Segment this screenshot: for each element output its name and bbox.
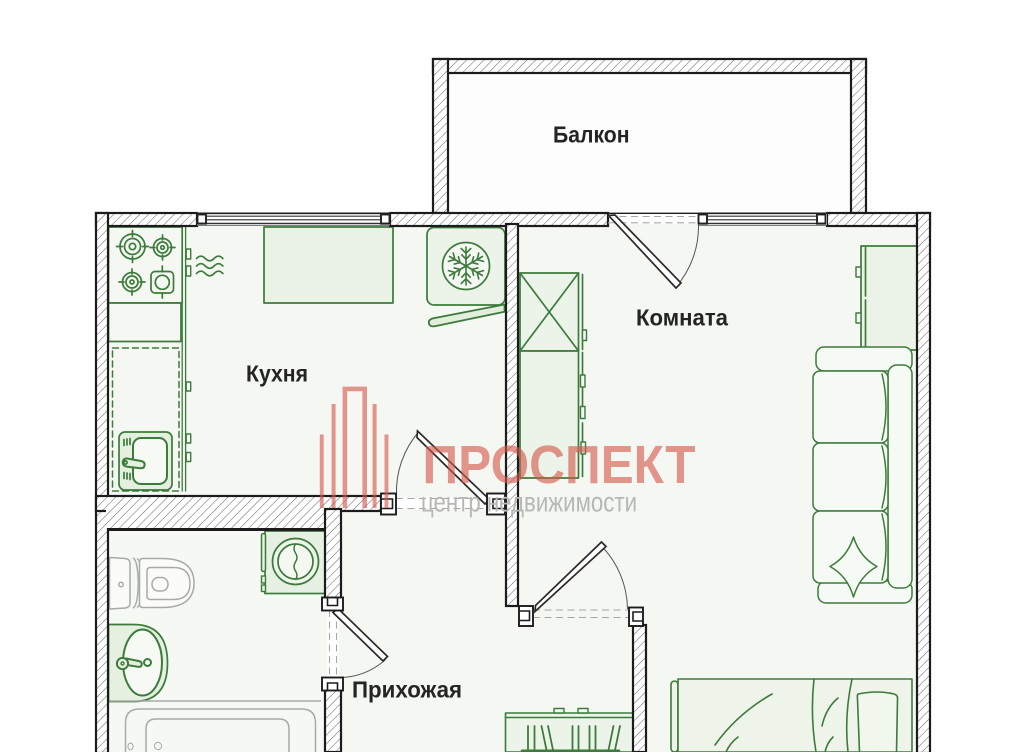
svg-text:Кухня: Кухня (246, 361, 308, 387)
svg-text:центр недвижимости: центр недвижимости (421, 487, 637, 518)
svg-text:Комната: Комната (636, 305, 729, 331)
svg-text:Балкон: Балкон (553, 122, 630, 148)
svg-text:Прихожая: Прихожая (352, 677, 462, 703)
